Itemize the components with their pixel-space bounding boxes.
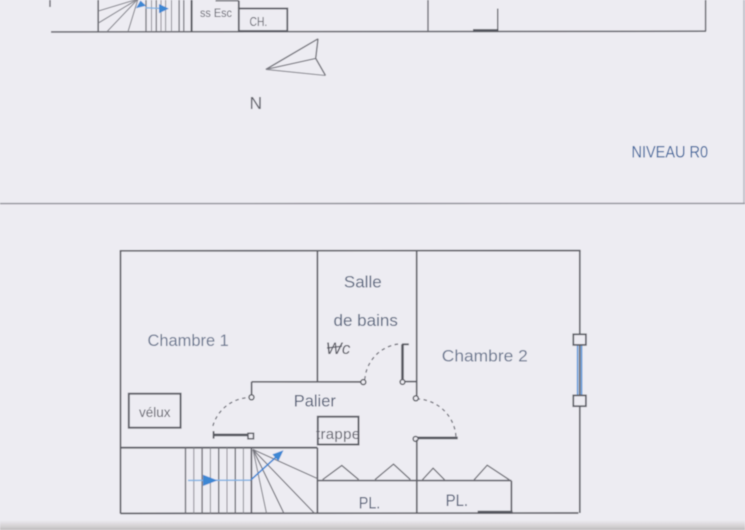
svg-text:Salle: Salle xyxy=(344,273,382,292)
svg-text:Palier: Palier xyxy=(294,393,337,411)
svg-text:trappe: trappe xyxy=(316,426,360,443)
svg-text:Chambre 2: Chambre 2 xyxy=(442,347,528,366)
svg-text:Chambre 1: Chambre 1 xyxy=(148,331,229,350)
svg-text:PL.: PL. xyxy=(359,494,381,513)
svg-text:vélux: vélux xyxy=(139,405,171,420)
svg-text:NIVEAU R0: NIVEAU R0 xyxy=(632,144,709,162)
svg-text:Wc: Wc xyxy=(326,339,351,358)
svg-text:de bains: de bains xyxy=(334,311,398,330)
svg-text:N: N xyxy=(250,93,263,113)
svg-text:ss Esc: ss Esc xyxy=(200,8,232,20)
svg-text:CH.: CH. xyxy=(250,15,268,29)
svg-text:PL.: PL. xyxy=(446,491,469,510)
